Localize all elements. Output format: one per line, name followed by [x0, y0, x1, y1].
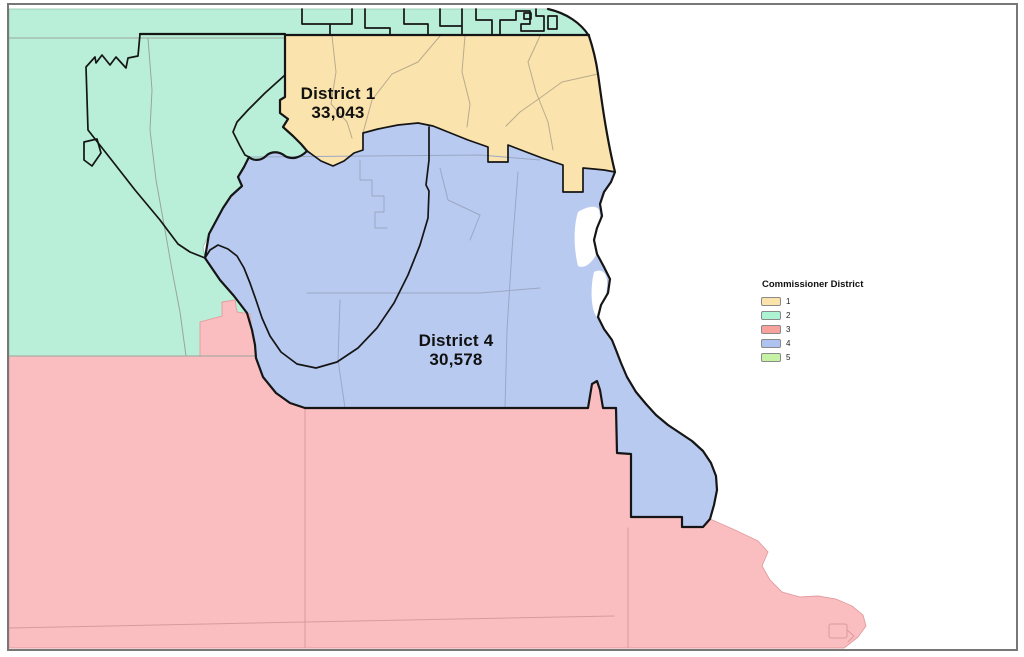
district-1-population: 33,043 — [282, 103, 394, 122]
district-1-label: District 1 33,043 — [282, 84, 394, 122]
district-4-name: District 4 — [400, 331, 512, 350]
legend-swatch-district1 — [761, 297, 781, 306]
legend-item-4: 4 — [761, 336, 891, 350]
legend-item-5: 5 — [761, 350, 891, 364]
legend-swatch-district5 — [761, 353, 781, 362]
district-4-population: 30,578 — [400, 350, 512, 369]
legend-swatch-district4 — [761, 339, 781, 348]
map-page: District 1 33,043 District 4 30,578 Comm… — [0, 0, 1024, 657]
legend-label-district2: 2 — [786, 311, 790, 320]
legend-label-district1: 1 — [786, 297, 790, 306]
legend-item-1: 1 — [761, 294, 891, 308]
legend-title: Commissioner District — [762, 279, 891, 290]
district-4-label: District 4 30,578 — [400, 331, 512, 369]
legend-swatch-district2 — [761, 311, 781, 320]
legend-item-3: 3 — [761, 322, 891, 336]
legend-item-2: 2 — [761, 308, 891, 322]
legend: Commissioner District 1 2 3 4 5 — [761, 279, 891, 364]
legend-swatch-district3 — [761, 325, 781, 334]
legend-label-district4: 4 — [786, 339, 790, 348]
district-1-name: District 1 — [282, 84, 394, 103]
legend-label-district3: 3 — [786, 325, 790, 334]
legend-label-district5: 5 — [786, 353, 790, 362]
